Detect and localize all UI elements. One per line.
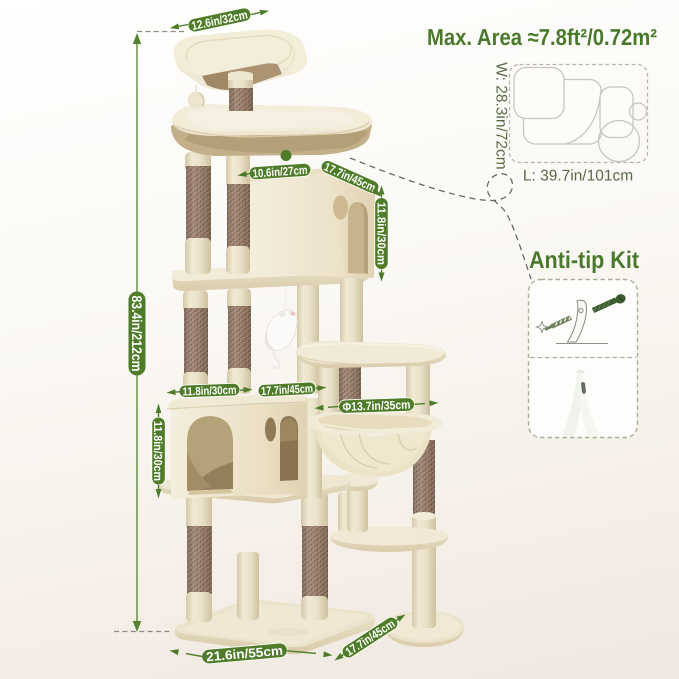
- svg-text:Anti-tip Kit: Anti-tip Kit: [529, 247, 639, 274]
- svg-text:W: 28.3in/72cm: W: 28.3in/72cm: [493, 62, 510, 169]
- svg-text:L: 39.7in/101cm: L: 39.7in/101cm: [523, 168, 633, 185]
- svg-text:17.7in/45cm: 17.7in/45cm: [261, 382, 314, 398]
- svg-text:83.4in/212cm: 83.4in/212cm: [129, 296, 145, 372]
- svg-text:12.6in/32cm: 12.6in/32cm: [190, 8, 249, 34]
- svg-text:11.8in/30cm: 11.8in/30cm: [182, 384, 236, 399]
- svg-text:11.8in/30cm: 11.8in/30cm: [151, 421, 165, 481]
- svg-text:Φ13.7in/35cm: Φ13.7in/35cm: [342, 398, 410, 414]
- svg-text:Max. Area ≈7.8ft²/0.72m²: Max. Area ≈7.8ft²/0.72m²: [427, 24, 657, 50]
- svg-text:11.8in/30cm: 11.8in/30cm: [374, 202, 388, 265]
